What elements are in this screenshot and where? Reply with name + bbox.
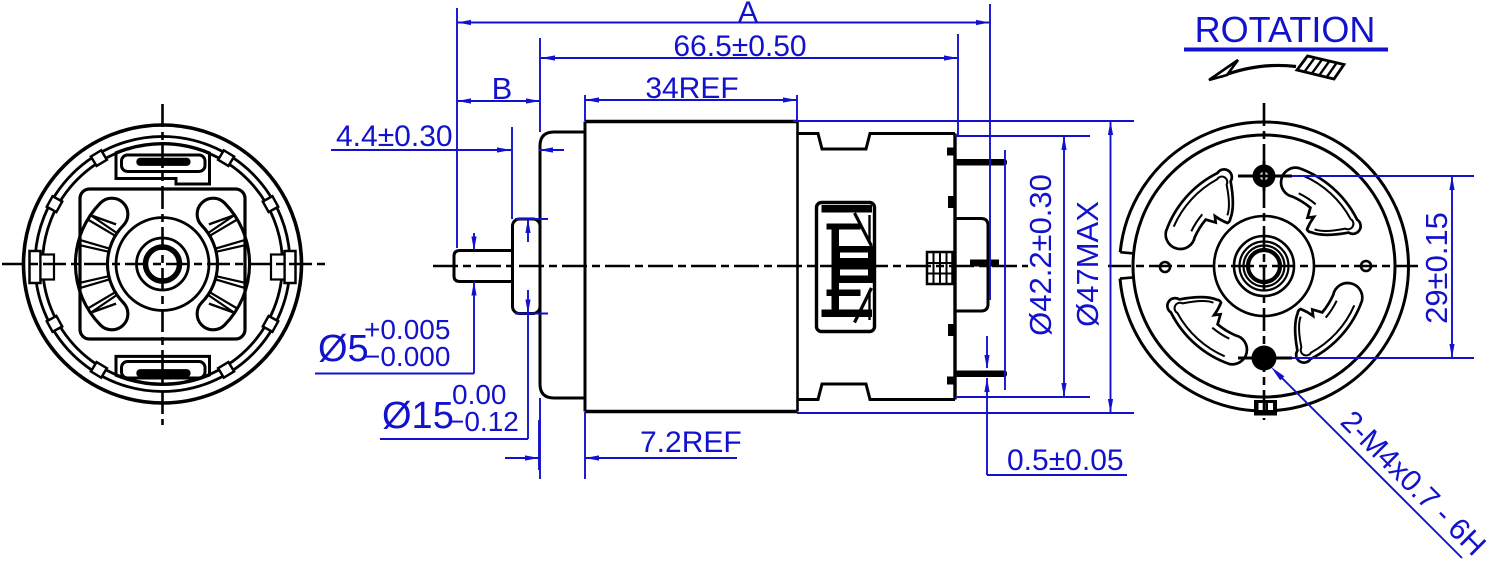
svg-text:−0.000: −0.000 xyxy=(364,341,450,372)
svg-text:A: A xyxy=(738,0,758,29)
svg-text:0.5±0.05: 0.5±0.05 xyxy=(1007,444,1124,477)
svg-text:Ø47MAX: Ø47MAX xyxy=(1070,201,1105,327)
svg-text:Ø5: Ø5 xyxy=(318,328,369,370)
svg-text:Ø42.2±0.30: Ø42.2±0.30 xyxy=(1023,174,1058,336)
svg-text:7.2REF: 7.2REF xyxy=(640,426,742,459)
svg-text:ROTATION: ROTATION xyxy=(1195,9,1376,50)
svg-text:66.5±0.50: 66.5±0.50 xyxy=(673,30,806,63)
svg-text:29±0.15: 29±0.15 xyxy=(1419,212,1454,324)
svg-text:34REF: 34REF xyxy=(645,72,738,105)
svg-text:4.4±0.30: 4.4±0.30 xyxy=(336,120,453,153)
svg-text:Ø15: Ø15 xyxy=(382,395,454,437)
svg-text:−0.12: −0.12 xyxy=(448,406,519,437)
svg-text:2-M4x0.7 - 6H: 2-M4x0.7 - 6H xyxy=(1334,405,1490,563)
svg-text:B: B xyxy=(492,71,513,106)
